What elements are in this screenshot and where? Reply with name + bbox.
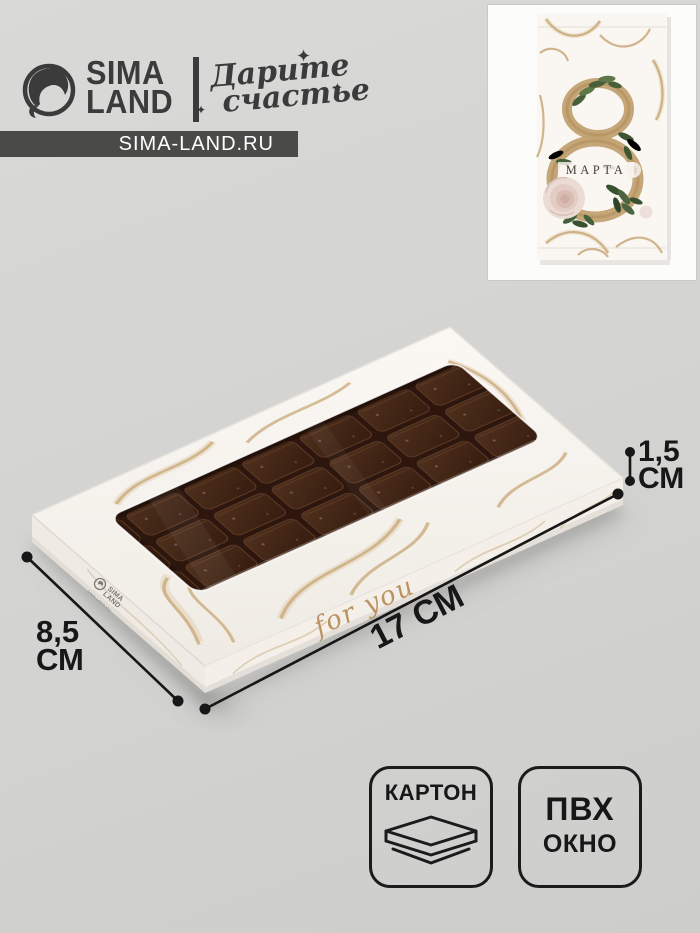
sparkle-icon: ✦ (296, 48, 311, 66)
logo-line-2: LAND (86, 87, 173, 116)
badge-pvc-line2: ОКНО (521, 830, 639, 859)
product-photo-page: { "header": { "logo_line1": "SIMA", "log… (0, 0, 700, 933)
height-value: 1,5 (638, 438, 684, 465)
sparkle-icon: ✦ (196, 104, 206, 116)
logo-tagline: Дарите счастье (209, 49, 371, 119)
sima-land-logo: SIMA LAND Дарите счастье ✦ ✦ ✦ (20, 54, 350, 124)
height-unit: СМ (638, 465, 684, 492)
dolphin-icon (20, 56, 78, 122)
badge-pvc-window: ПВХ ОКНО (518, 766, 642, 888)
badge-cardboard-label: КАРТОН (372, 780, 490, 806)
inset-marta-label: МАРТА (566, 163, 627, 177)
inset-illustration: МАРТА (488, 5, 696, 280)
sparkle-icon: ✦ (332, 82, 343, 95)
height-dimension-label: 1,5 СМ (638, 438, 684, 492)
badge-cardboard: КАРТОН (369, 766, 493, 888)
url-bar: SIMA-LAND.RU (0, 131, 298, 157)
width-unit: СМ (36, 646, 84, 674)
url-text: SIMA-LAND.RU (119, 133, 274, 155)
logo-wordmark: SIMA LAND (86, 58, 173, 116)
badge-pvc-line1: ПВХ (521, 791, 639, 828)
cardboard-layers-icon (381, 814, 481, 868)
inset-front-view: МАРТА (487, 4, 697, 281)
width-dimension-label: 8,5 СМ (36, 618, 84, 674)
